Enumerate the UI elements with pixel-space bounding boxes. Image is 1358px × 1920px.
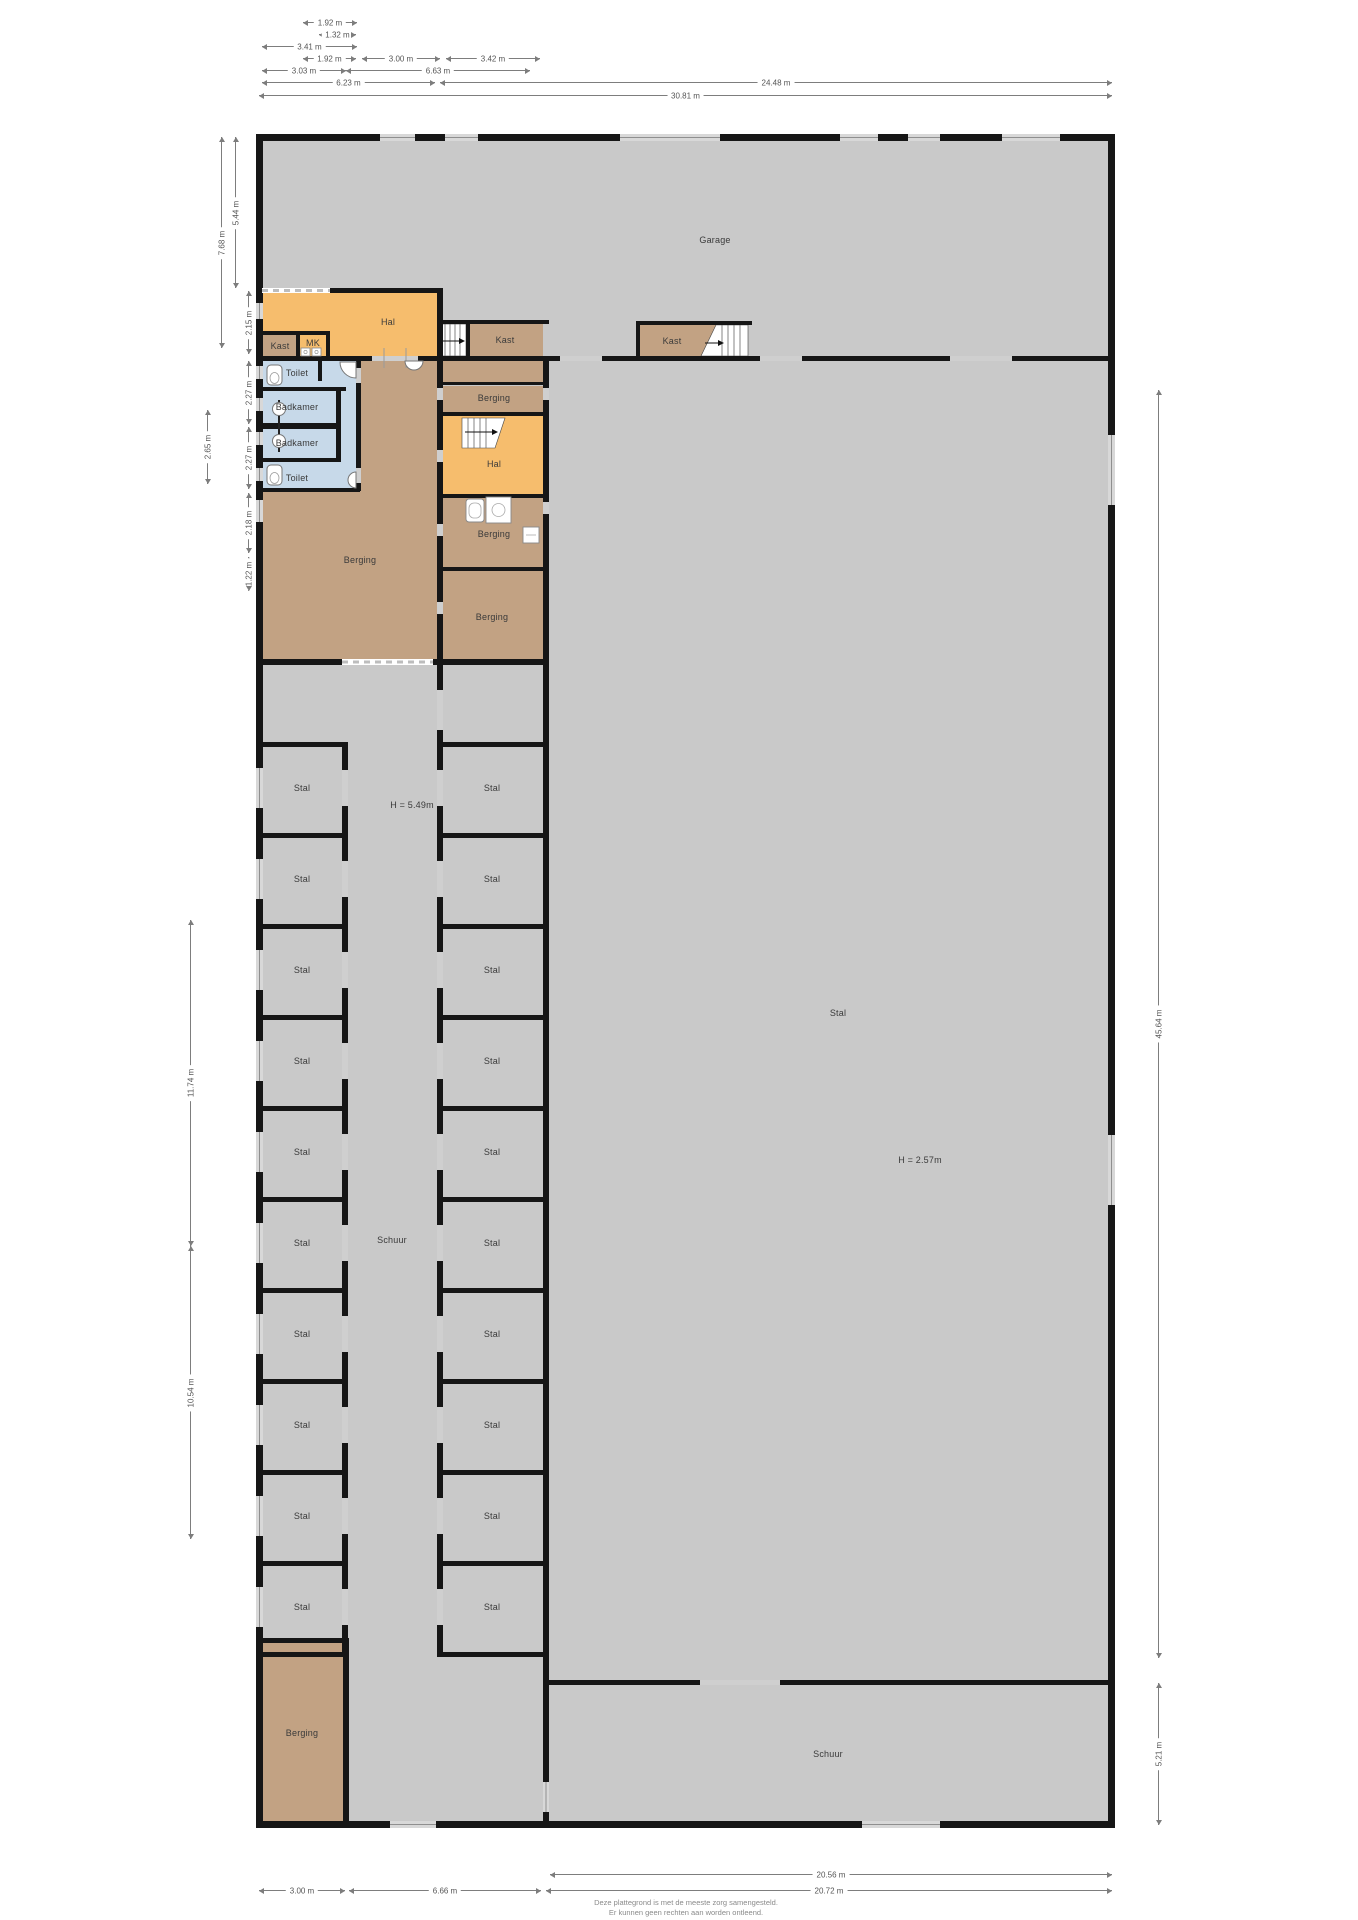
dimension-label: 1.32 m <box>321 31 353 40</box>
floor-plan-page: Deze plattegrond is met de meeste zorg s… <box>0 0 1358 1920</box>
room-label: Stal <box>484 1511 500 1521</box>
room-label: Stal <box>484 1238 500 1248</box>
room-label: Berging <box>476 612 508 622</box>
room-label: Stal <box>294 965 310 975</box>
dimension-label: 1.92 m <box>313 55 345 64</box>
dimension-label: 2.15 m <box>245 306 254 338</box>
room-label: Stal <box>294 1511 310 1521</box>
room-label: Badkamer <box>276 438 319 448</box>
dimension-label: 5.44 m <box>232 196 241 228</box>
disclaimer-line-1: Deze plattegrond is met de meeste zorg s… <box>594 1898 778 1908</box>
dimension-label: 24.48 m <box>758 79 795 88</box>
room-label: Stal <box>484 874 500 884</box>
dimension-line: 1.92 m <box>303 58 356 59</box>
room-label: H = 2.57m <box>898 1155 942 1165</box>
room-label: Stal <box>484 1056 500 1066</box>
dimension-label: 45.64 m <box>1155 1006 1164 1043</box>
dimension-label: 3.42 m <box>477 55 509 64</box>
dimension-line: 3.42 m <box>446 58 540 59</box>
room-label: Stal <box>294 783 310 793</box>
dimension-line: 45.64 m <box>1158 390 1159 1658</box>
room-label: H = 5.49m <box>390 800 434 810</box>
dimension-label: 2.18 m <box>245 507 254 539</box>
room-label: Stal <box>484 1602 500 1612</box>
dimension-line: 6.23 m <box>262 82 435 83</box>
dimension-label: 3.41 m <box>293 43 325 52</box>
room-label: Stal <box>484 1329 500 1339</box>
dimension-line: 3.03 m <box>262 70 346 71</box>
room-label: Berging <box>478 529 510 539</box>
room-label: Garage <box>699 235 730 245</box>
room-label: Stal <box>294 1147 310 1157</box>
room-label: Berging <box>344 555 376 565</box>
dimension-line: 7.68 m <box>221 137 222 348</box>
dimension-label: 20.56 m <box>813 1871 850 1880</box>
dimension-label: 6.66 m <box>429 1887 461 1896</box>
dimension-label: 30.81 m <box>667 92 704 101</box>
dimension-line: 6.66 m <box>349 1890 541 1891</box>
dimension-label: 2.27 m <box>245 376 254 408</box>
dimension-label: 6.63 m <box>422 67 454 76</box>
dimension-line: 2.18 m <box>248 493 249 553</box>
room-label: Stal <box>294 1602 310 1612</box>
dimension-label: 7.68 m <box>218 226 227 258</box>
room-label: Hal <box>381 317 395 327</box>
dimension-line: 20.72 m <box>546 1890 1112 1891</box>
dimension-label: 3.00 m <box>286 1887 318 1896</box>
room-label: Stal <box>484 1420 500 1430</box>
dimension-line: 3.00 m <box>362 58 440 59</box>
dimension-line: 3.41 m <box>262 46 357 47</box>
dimension-line: 5.44 m <box>235 137 236 288</box>
dimension-line: 3.00 m <box>259 1890 345 1891</box>
dimension-label: 1.22 m <box>245 558 254 590</box>
labels-overlay: Deze plattegrond is met de meeste zorg s… <box>0 0 1358 1920</box>
room-label: Berging <box>478 393 510 403</box>
dimension-label: 3.00 m <box>385 55 417 64</box>
dimension-line: 2.27 m <box>248 361 249 424</box>
room-label: Toilet <box>286 368 308 378</box>
room-label: MK <box>306 338 320 348</box>
dimension-label: 6.23 m <box>332 79 364 88</box>
dimension-label: 5.21 m <box>1155 1738 1164 1770</box>
dimension-line: 20.56 m <box>550 1874 1112 1875</box>
room-label: Kast <box>663 336 682 346</box>
room-label: Stal <box>294 1238 310 1248</box>
disclaimer-line-2: Er kunnen geen rechten aan worden ontlee… <box>609 1908 763 1918</box>
dimension-label: 10.54 m <box>187 1374 196 1411</box>
dimension-line: 5.21 m <box>1158 1683 1159 1825</box>
dimension-line: 30.81 m <box>259 95 1112 96</box>
dimension-line: 1.22 m <box>248 557 249 591</box>
room-label: Schuur <box>813 1749 843 1759</box>
dimension-label: 11.74 m <box>187 1065 196 1101</box>
room-label: Badkamer <box>276 402 319 412</box>
dimension-label: 2.27 m <box>245 442 254 474</box>
room-label: Stal <box>484 965 500 975</box>
dimension-line: 24.48 m <box>440 82 1112 83</box>
dimension-line: 11.74 m <box>190 920 191 1246</box>
room-label: Schuur <box>377 1235 407 1245</box>
room-label: Stal <box>484 1147 500 1157</box>
room-label: Kast <box>496 335 515 345</box>
room-label: Stal <box>294 1329 310 1339</box>
room-label: Berging <box>286 1728 318 1738</box>
room-label: Hal <box>487 459 501 469</box>
room-label: Stal <box>294 1056 310 1066</box>
room-label: Stal <box>484 783 500 793</box>
dimension-line: 2.27 m <box>248 427 249 489</box>
dimension-label: 20.72 m <box>811 1887 848 1896</box>
room-label: Stal <box>830 1008 846 1018</box>
room-label: Stal <box>294 874 310 884</box>
room-label: Kast <box>271 341 290 351</box>
dimension-line: 1.32 m <box>319 34 356 35</box>
dimension-label: 2.65 m <box>204 431 213 463</box>
dimension-line: 6.63 m <box>346 70 530 71</box>
room-label: Toilet <box>286 473 308 483</box>
room-label: Stal <box>294 1420 310 1430</box>
dimension-label: 1.92 m <box>314 19 346 28</box>
dimension-label: 3.03 m <box>288 67 320 76</box>
dimension-line: 1.92 m <box>303 22 357 23</box>
dimension-line: 2.15 m <box>248 291 249 354</box>
dimension-line: 10.54 m <box>190 1246 191 1539</box>
dimension-line: 2.65 m <box>207 410 208 484</box>
